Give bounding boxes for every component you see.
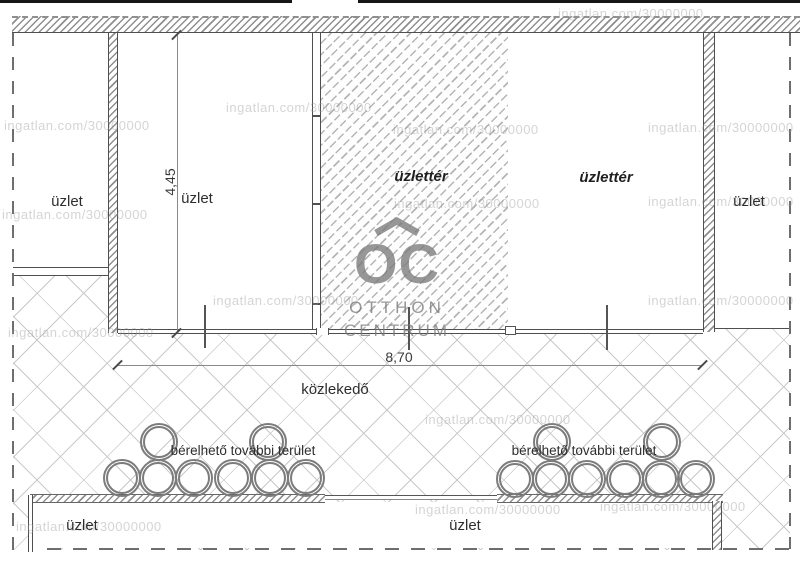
logo-monogram: OC (331, 236, 463, 292)
dimension-line-horizontal (118, 365, 703, 366)
watermark-text: ingatlan.com/30000000 (8, 325, 154, 340)
roll-circle (287, 459, 325, 497)
otthon-centrum-logo: OC OTTHON CENTRUM (331, 216, 463, 341)
partition-tick (312, 115, 321, 117)
wall-pier (505, 326, 516, 335)
wall-partition-glazed (312, 33, 321, 329)
roll-circle (568, 460, 606, 498)
label-shop-2: üzlet (157, 190, 237, 207)
roll-circle (677, 460, 715, 498)
watermark-text: ingatlan.com/30000000 (648, 120, 794, 135)
watermark-text: ingatlan.com/30000000 (648, 293, 794, 308)
neighbour-edge-right (358, 0, 800, 3)
lower-wall-connector (325, 495, 497, 500)
entrance-mark (204, 305, 206, 348)
partition-tick (312, 203, 321, 205)
boundary-bottom-dashed (47, 548, 792, 550)
roll-circle (532, 460, 570, 498)
neighbour-edge-left (0, 0, 292, 3)
watermark-text: ingatlan.com/30000000 (558, 6, 704, 21)
dimension-frontage-width: 8,70 (369, 349, 429, 365)
label-shopspace-right: üzlettér (556, 169, 656, 186)
label-shop-left: üzlet (27, 193, 107, 210)
entrance-mark (606, 305, 608, 350)
boundary-right-dashed (789, 33, 791, 549)
roll-circle (496, 460, 534, 498)
wall-left-hatched (108, 33, 118, 333)
watermark-text: ingatlan.com/30000000 (4, 118, 150, 133)
roll-circle (251, 459, 289, 497)
room-shop-left-bottom-wall (13, 267, 108, 276)
label-rentable-right: bérelhető további terület (499, 443, 669, 458)
roll-circle (606, 460, 644, 498)
label-shop-bottom-left: üzlet (42, 517, 122, 534)
logo-line2: CENTRUM (331, 321, 463, 341)
roll-circle (214, 459, 252, 497)
watermark-text: ingatlan.com/30000000 (394, 196, 540, 211)
room-shop-2 (118, 33, 312, 329)
roll-circle (103, 459, 141, 497)
label-rentable-left: bérelhető további terület (158, 443, 328, 458)
lower-wall-left (30, 494, 325, 503)
label-shopspace-hatched: üzlettér (371, 168, 471, 185)
watermark-text: ingatlan.com/30000000 (415, 502, 561, 517)
label-corridor: közlekedő (285, 381, 385, 398)
wall-right-hatched (703, 33, 715, 332)
roll-circle (642, 460, 680, 498)
room-shop-right (715, 33, 791, 329)
floor-plan: 4,45 8,70 ingatlan.com/30000000 ingatlan… (0, 0, 800, 566)
logo-line1: OTTHON (331, 298, 463, 318)
roll-circle (175, 459, 213, 497)
boundary-left-dashed (12, 33, 14, 552)
door-opening (316, 328, 329, 335)
watermark-text: ingatlan.com/30000000 (226, 100, 372, 115)
room-shop-left (13, 33, 108, 267)
label-shop-right: üzlet (709, 193, 789, 210)
watermark-text: ingatlan.com/30000000 (425, 412, 571, 427)
label-shop-bottom-center: üzlet (425, 517, 505, 534)
watermark-text: ingatlan.com/30000000 (393, 122, 539, 137)
roll-circle (139, 459, 177, 497)
watermark-text: ingatlan.com/30000000 (600, 499, 746, 514)
